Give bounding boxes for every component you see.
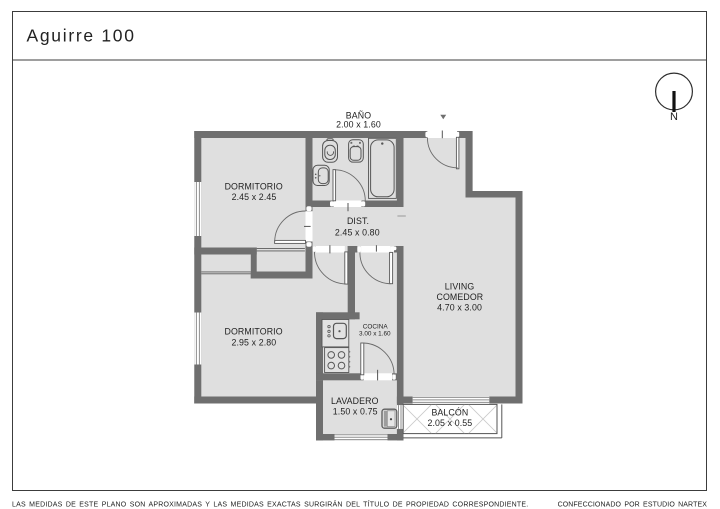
svg-text:2.45 x 2.45: 2.45 x 2.45 bbox=[232, 192, 277, 202]
svg-text:BALCÓN: BALCÓN bbox=[431, 408, 468, 418]
svg-text:N: N bbox=[670, 111, 678, 123]
svg-text:Aguirre 100: Aguirre 100 bbox=[27, 26, 136, 46]
svg-text:4.70 x 3.00: 4.70 x 3.00 bbox=[437, 303, 482, 313]
svg-text:LIVING: LIVING bbox=[445, 282, 475, 292]
svg-text:CONFECCIONADO POR ESTUDIO NART: CONFECCIONADO POR ESTUDIO NARTEX bbox=[558, 502, 708, 509]
svg-text:COMEDOR: COMEDOR bbox=[437, 292, 484, 302]
svg-text:1.50 x 0.75: 1.50 x 0.75 bbox=[333, 407, 378, 417]
svg-text:DIST.: DIST. bbox=[347, 216, 369, 226]
svg-text:LAVADERO: LAVADERO bbox=[331, 396, 379, 406]
svg-text:2.05 x 0.55: 2.05 x 0.55 bbox=[427, 418, 472, 428]
svg-text:3.00 x 1.60: 3.00 x 1.60 bbox=[359, 330, 391, 337]
svg-text:2.45 x 0.80: 2.45 x 0.80 bbox=[335, 227, 380, 237]
svg-text:DORMITORIO: DORMITORIO bbox=[224, 327, 282, 337]
svg-text:2.00 x 1.60: 2.00 x 1.60 bbox=[336, 120, 381, 130]
svg-text:DORMITORIO: DORMITORIO bbox=[225, 182, 283, 192]
svg-text:2.95 x 2.80: 2.95 x 2.80 bbox=[231, 337, 276, 347]
svg-text:LAS MEDIDAS DE ESTE PLANO SON: LAS MEDIDAS DE ESTE PLANO SON APROXIMADA… bbox=[12, 500, 528, 509]
